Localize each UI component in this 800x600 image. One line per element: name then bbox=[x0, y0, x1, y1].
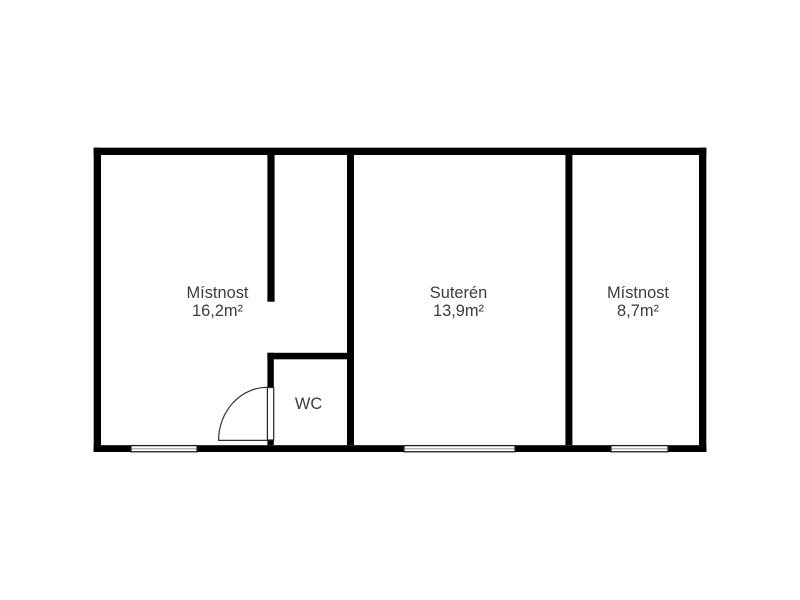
svg-text:Místnost: Místnost bbox=[607, 284, 669, 302]
svg-text:13,9m²: 13,9m² bbox=[433, 302, 485, 320]
svg-text:16,2m²: 16,2m² bbox=[192, 302, 244, 320]
svg-text:WC: WC bbox=[295, 395, 322, 413]
svg-text:Suterén: Suterén bbox=[430, 284, 487, 302]
svg-text:8,7m²: 8,7m² bbox=[617, 302, 659, 320]
svg-text:Místnost: Místnost bbox=[187, 284, 249, 302]
